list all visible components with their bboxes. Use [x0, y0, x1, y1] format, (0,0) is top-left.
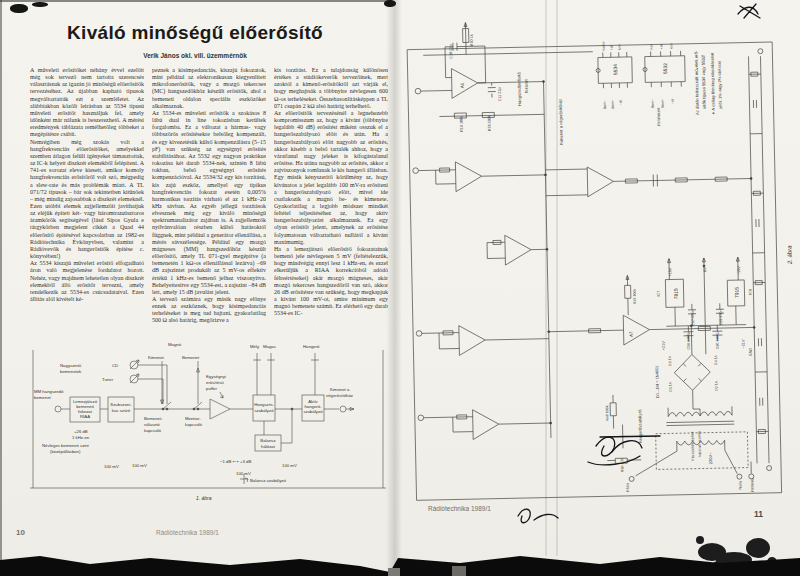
scan-bottom-band [0, 0, 800, 576]
scanned-magazine-spread: Kiváló minőségű előerősítő Verik János o… [0, 0, 800, 576]
